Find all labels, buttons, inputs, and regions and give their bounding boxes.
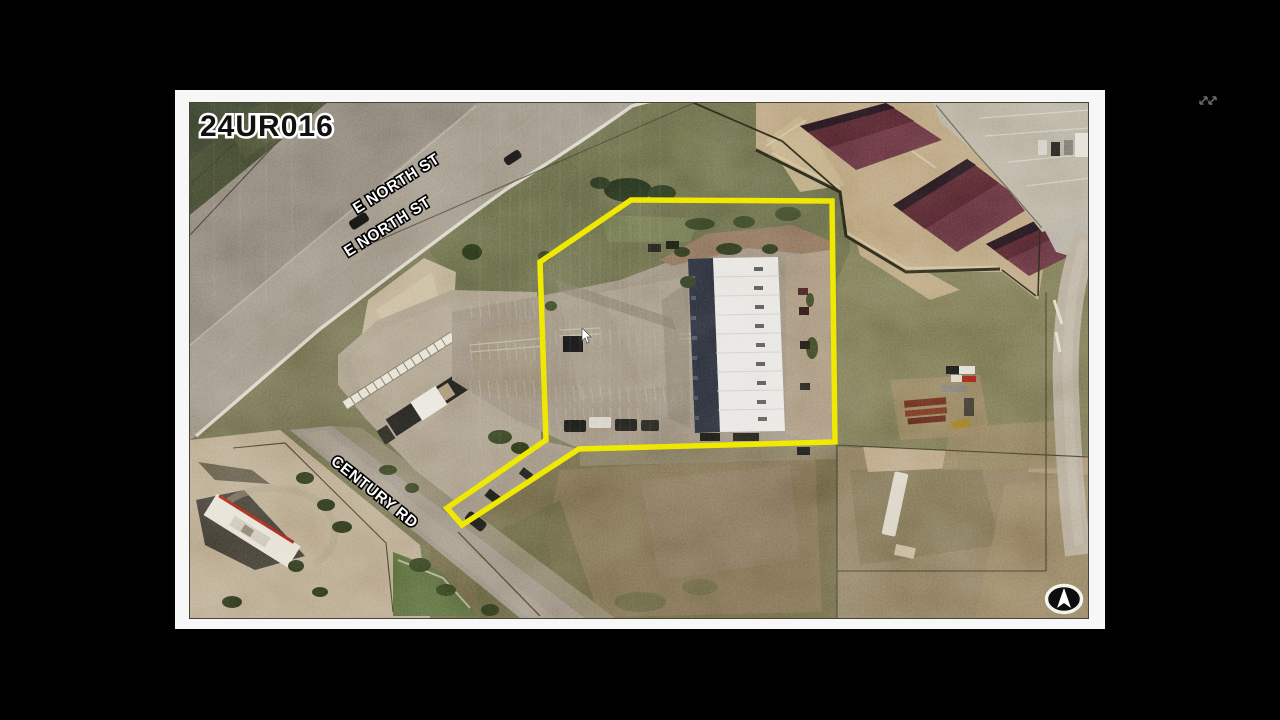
svg-text:24UR016: 24UR016: [200, 110, 334, 143]
